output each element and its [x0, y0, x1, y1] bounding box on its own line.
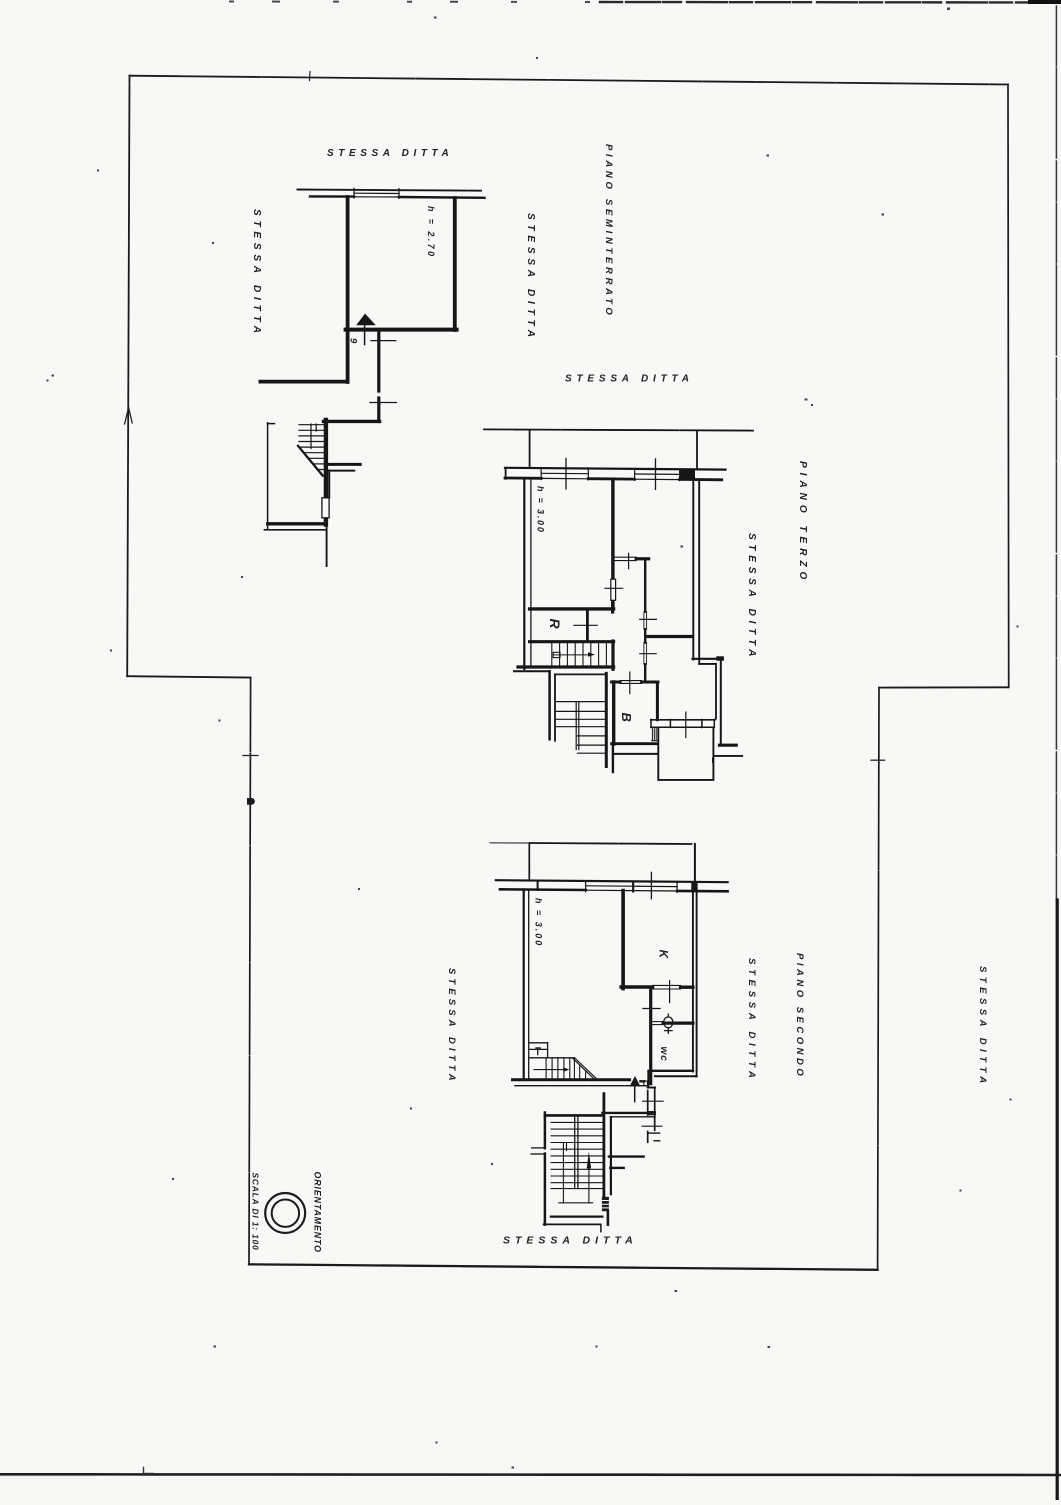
svg-text:PIANO SECONDO: PIANO SECONDO: [794, 953, 805, 1079]
svg-text:STESSA DITTA: STESSA DITTA: [746, 533, 757, 661]
svg-text:STESSA DITTA: STESSA DITTA: [446, 968, 457, 1085]
svg-text:K: K: [657, 950, 671, 960]
svg-text:STESSA DITTA: STESSA DITTA: [565, 374, 694, 385]
svg-text:STESSA DITTA: STESSA DITTA: [503, 1235, 638, 1247]
svg-text:ORIENTAMENTO: ORIENTAMENTO: [313, 1172, 323, 1253]
svg-text:STESSA DITTA: STESSA DITTA: [746, 958, 757, 1083]
svg-text:h = 3.00: h = 3.00: [536, 486, 546, 534]
svg-text:STESSA DITTA: STESSA DITTA: [977, 966, 988, 1088]
svg-text:9: 9: [348, 338, 359, 344]
svg-text:h = 3.00: h = 3.00: [534, 898, 544, 947]
svg-text:PIANO TERZO: PIANO TERZO: [797, 461, 808, 584]
svg-text:STESSA DITTA: STESSA DITTA: [327, 148, 453, 159]
svg-text:wc: wc: [658, 1047, 669, 1062]
svg-text:STESSA DITTA: STESSA DITTA: [251, 209, 262, 338]
svg-text:B: B: [619, 713, 634, 722]
svg-text:PIANO SEMINTERRATO: PIANO SEMINTERRATO: [603, 144, 614, 318]
svg-text:SCALA DI 1: 100: SCALA DI 1: 100: [251, 1173, 261, 1251]
svg-text:STESSA DITTA: STESSA DITTA: [525, 213, 536, 342]
svg-text:h = 2.70: h = 2.70: [426, 206, 436, 258]
svg-text:R: R: [547, 619, 563, 630]
